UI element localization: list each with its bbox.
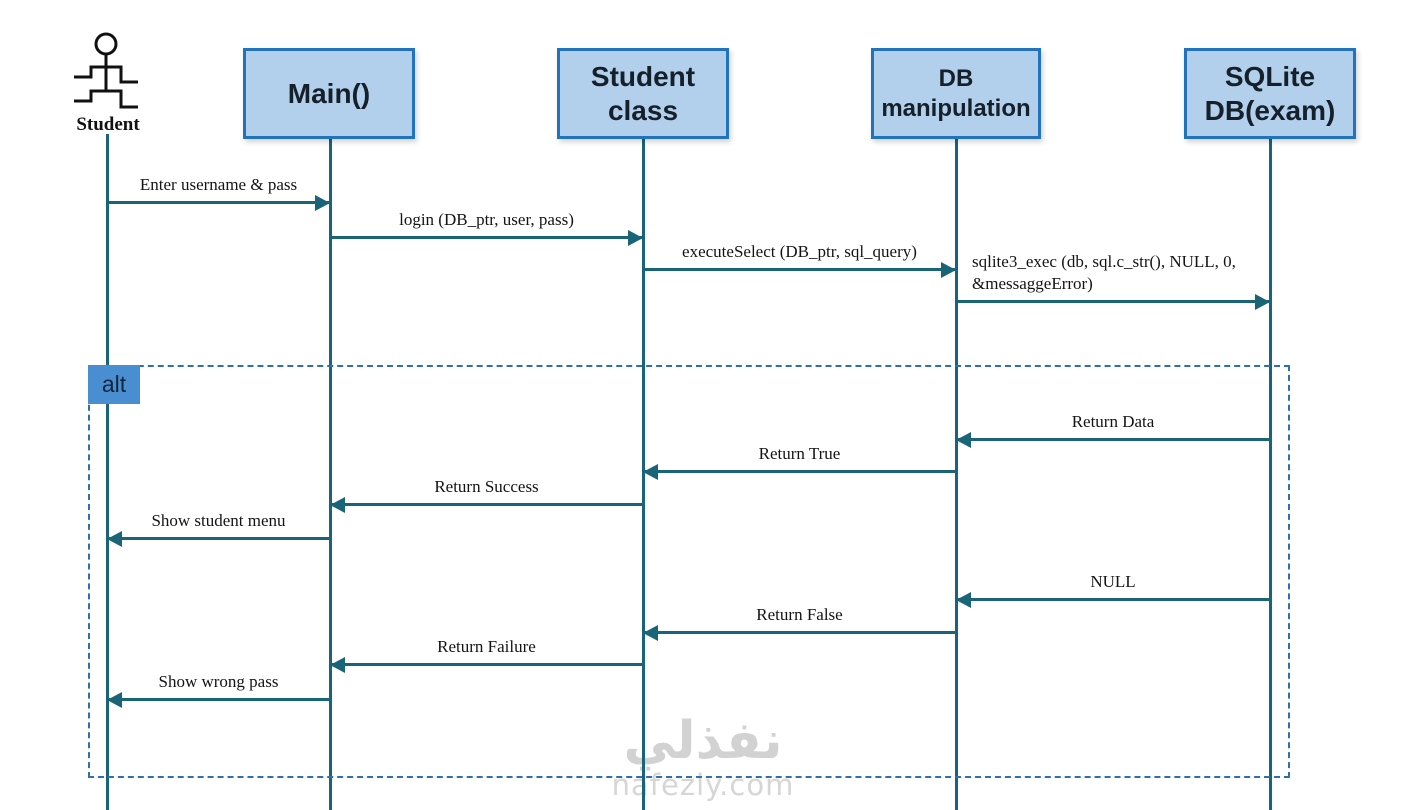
message-arrow bbox=[330, 236, 643, 239]
arrowhead-icon bbox=[107, 692, 122, 708]
arrowhead-icon bbox=[315, 195, 330, 211]
alt-fragment-tab: alt bbox=[88, 365, 140, 404]
message-arrow bbox=[643, 470, 956, 473]
message-return-true: Return True bbox=[643, 443, 956, 473]
participant-label: Student class bbox=[560, 60, 726, 128]
message-arrow bbox=[107, 201, 330, 204]
participant-db-manipulation: DB manipulation bbox=[871, 48, 1041, 139]
message-label: login (DB_ptr, user, pass) bbox=[330, 209, 643, 236]
message-return-data: Return Data bbox=[956, 411, 1270, 441]
message-return-false: Return False bbox=[643, 604, 956, 634]
message-arrow bbox=[643, 631, 956, 634]
participant-main: Main() bbox=[243, 48, 415, 139]
arrowhead-icon bbox=[1255, 294, 1270, 310]
arrowhead-icon bbox=[956, 432, 971, 448]
message-enter-username-pass: Enter username & pass bbox=[107, 174, 330, 204]
participant-label: SQLite DB(exam) bbox=[1187, 60, 1353, 128]
participant-label: Main() bbox=[288, 77, 370, 111]
message-label: executeSelect (DB_ptr, sql_query) bbox=[643, 241, 956, 268]
message-execute-select: executeSelect (DB_ptr, sql_query) bbox=[643, 241, 956, 271]
message-login: login (DB_ptr, user, pass) bbox=[330, 209, 643, 239]
participant-sqlite-db: SQLite DB(exam) bbox=[1184, 48, 1356, 139]
message-label: Return True bbox=[643, 443, 956, 470]
message-arrow bbox=[330, 663, 643, 666]
message-return-success: Return Success bbox=[330, 476, 643, 506]
message-arrow bbox=[956, 300, 1270, 303]
message-arrow bbox=[956, 438, 1270, 441]
message-arrow bbox=[107, 698, 330, 701]
message-label: Return False bbox=[643, 604, 956, 631]
message-label: Enter username & pass bbox=[107, 174, 330, 201]
actor-label: Student bbox=[68, 114, 148, 136]
sequence-diagram: نفذلي nafezly.com Student Main() Student… bbox=[0, 0, 1417, 810]
message-arrow bbox=[107, 537, 330, 540]
message-arrow bbox=[643, 268, 956, 271]
message-label: Return Failure bbox=[330, 636, 643, 663]
arrowhead-icon bbox=[956, 592, 971, 608]
participant-student-class: Student class bbox=[557, 48, 729, 139]
arrowhead-icon bbox=[330, 657, 345, 673]
message-label: sqlite3_exec (db, sql.c_str(), NULL, 0, … bbox=[956, 251, 1270, 300]
message-sqlite3-exec: sqlite3_exec (db, sql.c_str(), NULL, 0, … bbox=[956, 251, 1270, 303]
arrowhead-icon bbox=[628, 230, 643, 246]
message-label: Return Success bbox=[330, 476, 643, 503]
arrowhead-icon bbox=[643, 464, 658, 480]
message-null: NULL bbox=[956, 571, 1270, 601]
arrowhead-icon bbox=[941, 262, 956, 278]
participant-student-actor: Student bbox=[68, 24, 148, 136]
participant-label: DB manipulation bbox=[874, 64, 1038, 124]
arrowhead-icon bbox=[107, 531, 122, 547]
arrowhead-icon bbox=[330, 497, 345, 513]
message-return-failure: Return Failure bbox=[330, 636, 643, 666]
message-show-wrong-pass: Show wrong pass bbox=[107, 671, 330, 701]
arrowhead-icon bbox=[643, 625, 658, 641]
message-label: Return Data bbox=[956, 411, 1270, 438]
message-arrow bbox=[330, 503, 643, 506]
message-arrow bbox=[956, 598, 1270, 601]
message-label: Show student menu bbox=[107, 510, 330, 537]
message-show-student-menu: Show student menu bbox=[107, 510, 330, 540]
message-label: Show wrong pass bbox=[107, 671, 330, 698]
message-label: NULL bbox=[956, 571, 1270, 598]
stick-figure-icon bbox=[68, 24, 148, 112]
